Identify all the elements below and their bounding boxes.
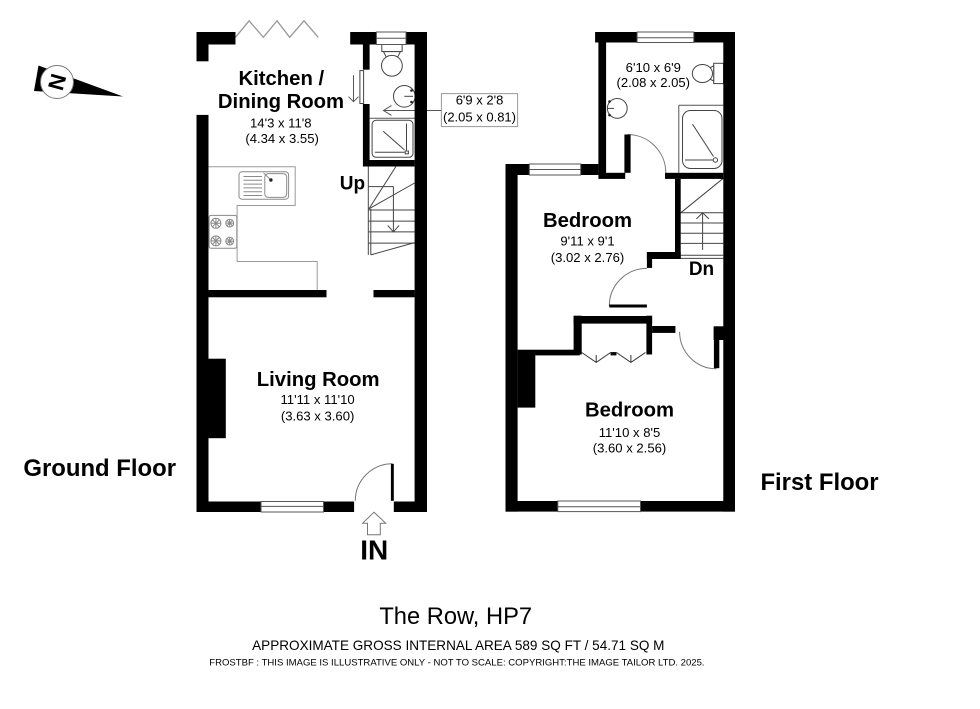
svg-text:First Floor: First Floor [760,469,878,496]
svg-text:(4.34 x 3.55): (4.34 x 3.55) [245,131,319,146]
svg-text:11'11 x 11'10: 11'11 x 11'10 [281,392,355,407]
svg-text:Ground Floor: Ground Floor [23,455,176,482]
svg-text:14'3 x 11'8: 14'3 x 11'8 [250,115,312,130]
svg-text:6'10 x 6'9: 6'10 x 6'9 [626,60,681,75]
svg-text:The Row, HP7: The Row, HP7 [379,604,532,630]
svg-text:(3.02 x 2.76): (3.02 x 2.76) [551,250,625,265]
svg-text:Bedroom: Bedroom [543,210,632,232]
svg-text:Bedroom: Bedroom [585,399,674,421]
svg-text:APPROXIMATE GROSS INTERNAL ARE: APPROXIMATE GROSS INTERNAL AREA 589 SQ F… [252,638,664,653]
svg-text:9'11 x 9'1: 9'11 x 9'1 [560,234,614,249]
svg-text:Dining Room: Dining Room [218,91,344,113]
svg-text:Dn: Dn [689,259,714,280]
svg-text:IN: IN [360,535,388,566]
svg-text:(3.63 x 3.60): (3.63 x 3.60) [281,409,355,424]
svg-text:(3.60 x 2.56): (3.60 x 2.56) [593,441,667,456]
svg-text:Up: Up [340,174,365,195]
svg-text:(2.05 x 0.81): (2.05 x 0.81) [443,110,516,125]
svg-text:FROSTBF : THIS IMAGE IS ILLUST: FROSTBF : THIS IMAGE IS ILLUSTRATIVE ONL… [209,657,704,668]
svg-text:11'10 x 8'5: 11'10 x 8'5 [599,425,661,440]
svg-text:Living Room: Living Room [257,369,380,391]
svg-text:Kitchen /: Kitchen / [238,68,324,90]
svg-text:6'9 x 2'8: 6'9 x 2'8 [456,93,504,108]
svg-text:(2.08 x 2.05): (2.08 x 2.05) [617,75,691,90]
